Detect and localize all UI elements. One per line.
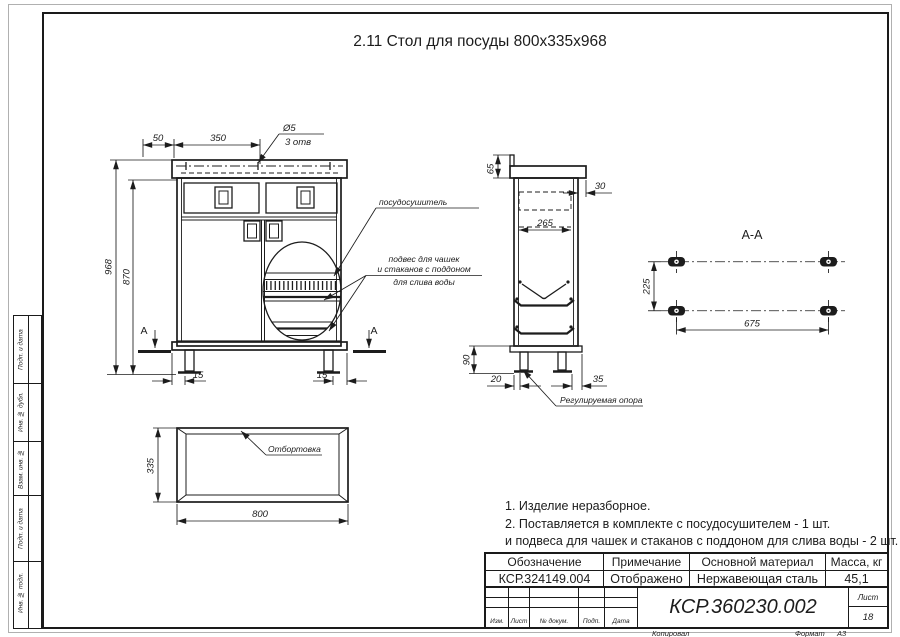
dim-265: 265	[536, 218, 554, 229]
side-dimensions: 65 30 265 90 20 35 Регулируемая опора	[462, 155, 644, 406]
dryer-callout: посудосушитель	[379, 197, 447, 207]
dim-968: 968	[104, 258, 115, 275]
dim-30: 30	[595, 181, 606, 192]
hole-diameter-label: Ø5	[282, 123, 296, 134]
callout-labels: посудосушитель подвес для чашек и стакан…	[324, 197, 482, 331]
front-view	[172, 160, 347, 373]
revision-table: Изм. Лист № докум. Подп. Дата	[486, 588, 638, 627]
column-header-mass: Масса, кг	[826, 554, 887, 570]
side-tabletop	[510, 166, 586, 178]
dim-90: 90	[462, 354, 473, 365]
dim-335: 335	[146, 457, 157, 474]
copied-label: Копировал	[652, 629, 689, 637]
column-header-designation: Обозначение	[486, 554, 604, 570]
drawing-sheet: Подп. и дата Инв. № дубл. Взам. инв. № П…	[0, 0, 900, 637]
sheet-number: 18	[849, 607, 887, 627]
dim-225: 225	[642, 278, 653, 296]
dim-50: 50	[153, 133, 164, 144]
value-material: Нержавеющая сталь	[690, 571, 826, 586]
dim-15-right: 15	[317, 370, 328, 381]
hole-count-label: 3 отв	[285, 137, 311, 148]
hanger-callout-line3: для слива воды	[393, 277, 455, 287]
front-leg-right	[324, 350, 333, 371]
hanger-callout-line1: подвес для чашек	[389, 254, 461, 264]
column-header-material: Основной материал	[690, 554, 826, 570]
dim-35: 35	[593, 374, 604, 385]
title-block-material-table: Обозначение Примечание Основной материал…	[484, 552, 889, 588]
flange-label: Отбортовка	[268, 444, 321, 454]
rev-label-doc: № докум.	[530, 608, 579, 627]
dim-15-left: 15	[193, 370, 204, 381]
dim-65: 65	[486, 163, 497, 174]
rev-label-data: Дата	[605, 608, 637, 627]
document-number: КСР.360230.002	[638, 588, 849, 627]
hanger-callout-line2: и стаканов с поддоном	[377, 264, 471, 274]
side-view	[510, 155, 586, 372]
sheet-column: Лист 18	[849, 588, 887, 627]
plan-outline	[177, 428, 348, 502]
section-title: А-А	[742, 228, 764, 242]
format-value: А3	[837, 629, 846, 637]
note-line-2: 2. Поставляется в комплекте с посудосуши…	[505, 516, 898, 534]
dim-870: 870	[122, 268, 133, 285]
column-header-note: Примечание	[604, 554, 690, 570]
format-label: Формат	[795, 629, 825, 637]
rev-label-list: Лист	[509, 608, 530, 627]
section-view: А-А 225 675	[642, 228, 846, 335]
front-leg-left	[185, 350, 194, 371]
drawer-handle	[215, 187, 232, 208]
note-line-1: 1. Изделие неразборное.	[505, 498, 898, 516]
drawer-handle	[297, 187, 314, 208]
drawing-notes: 1. Изделие неразборное. 2. Поставляется …	[505, 498, 898, 551]
section-mark-left: А	[140, 325, 147, 337]
note-line-3: и подвеса для чашек и стаканов с поддоно…	[505, 533, 898, 551]
side-leg-back	[558, 352, 566, 370]
shelf-profile-lower	[514, 328, 574, 334]
front-tabletop	[172, 160, 347, 178]
rev-label-izm: Изм.	[486, 608, 509, 627]
side-leg-front	[520, 352, 528, 370]
plan-view: Отбортовка 335 800	[146, 428, 349, 525]
value-note: Отображено	[604, 571, 690, 586]
adjustable-support-label: Регулируемая опора	[560, 395, 643, 405]
shelf-profile-upper	[514, 300, 574, 306]
title-block-main: Изм. Лист № докум. Подп. Дата КСР.360230…	[484, 586, 889, 629]
side-body	[514, 178, 578, 346]
rev-label-podp: Подп.	[579, 608, 605, 627]
dim-20: 20	[490, 374, 502, 385]
value-designation: КСР.324149.004	[486, 571, 604, 586]
dim-675: 675	[744, 319, 761, 330]
dim-350: 350	[210, 133, 227, 144]
sheet-label: Лист	[849, 588, 887, 607]
cup-hanger-profile	[522, 284, 566, 299]
dim-800: 800	[252, 509, 269, 520]
side-base	[510, 346, 582, 352]
section-mark-right: А	[370, 325, 377, 337]
value-mass: 45,1	[826, 571, 887, 586]
